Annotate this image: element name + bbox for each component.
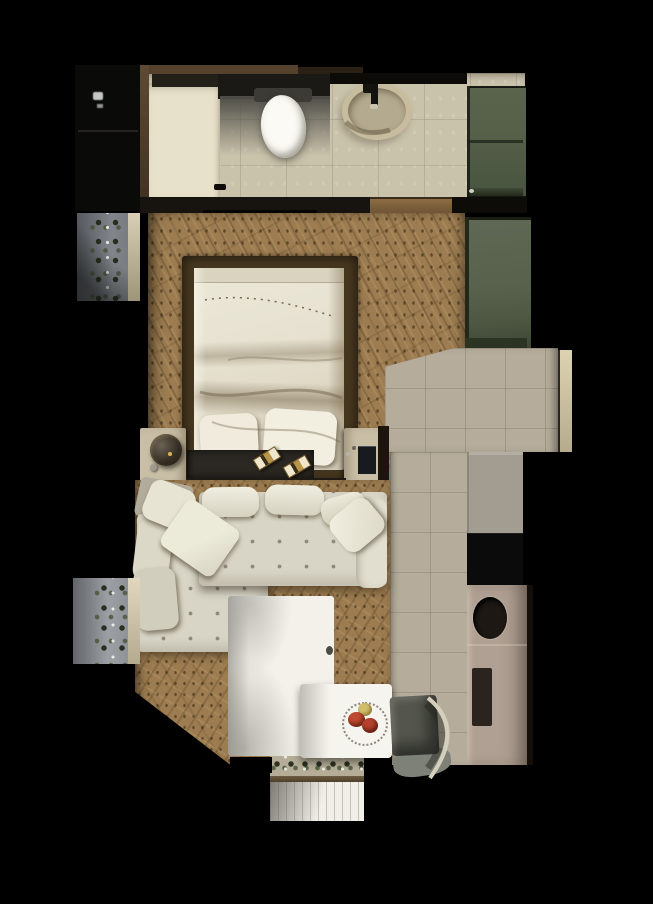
apple-red-2 xyxy=(362,718,378,733)
wall-top-brown xyxy=(148,65,298,74)
chair-seat xyxy=(389,695,439,756)
cabinet-divider xyxy=(467,140,523,143)
wall-left-strip xyxy=(140,65,149,212)
bedroom-green-wardrobe xyxy=(465,217,531,348)
cutting-board xyxy=(472,668,492,726)
nightstand-right-speck-2 xyxy=(352,446,356,450)
balcony-deck xyxy=(270,782,364,821)
kitchen-round-sink xyxy=(473,597,507,639)
nightstand-left-knob xyxy=(150,464,157,471)
nightstand-right-gap-shadow xyxy=(378,426,389,488)
wall-bathroom-bottom-right xyxy=(452,197,527,213)
counter-seam xyxy=(467,644,527,646)
floor-edge-patch-left xyxy=(230,757,272,773)
balcony-lower-wall xyxy=(128,578,140,664)
duvet-top-fold xyxy=(194,268,344,283)
sofa-back-cushion-2 xyxy=(265,484,325,516)
hall-tile-upper xyxy=(385,348,558,452)
duvet-crease-1 xyxy=(194,337,345,368)
floorplan-canvas xyxy=(0,0,653,904)
shower-drain-mark xyxy=(214,184,226,190)
wall-top-sink-dark xyxy=(330,73,467,84)
hall-right-wall xyxy=(558,350,572,452)
lamp-gold-glint xyxy=(168,452,172,456)
threshold-plants xyxy=(270,756,364,776)
cooktop xyxy=(467,533,523,585)
entry-handle-glyph xyxy=(93,92,103,100)
nightstand-right-item xyxy=(358,446,376,474)
wardrobe-bottom-strip xyxy=(465,338,527,348)
faucet-spout-tip xyxy=(370,104,378,109)
nightstand-right-speck-1 xyxy=(346,452,350,456)
cabinet-speck xyxy=(469,189,474,193)
balcony-lower-plants xyxy=(95,578,129,664)
table-lamp xyxy=(150,434,182,466)
kitchen-counter-upper xyxy=(467,452,523,533)
entry-closet xyxy=(75,65,140,211)
rug-handle-dot xyxy=(326,646,333,655)
entry-shelf-line xyxy=(78,130,138,132)
vanity-counter xyxy=(152,73,218,87)
shower-mat xyxy=(148,83,220,198)
balcony-upper-wall xyxy=(128,213,140,301)
